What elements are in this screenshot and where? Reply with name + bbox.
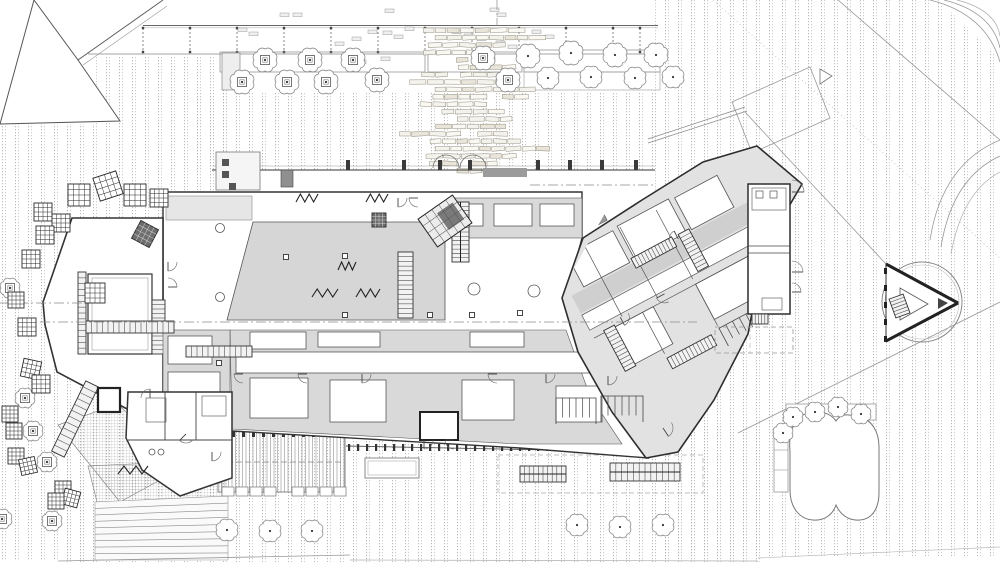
tree-trunk: [32, 430, 34, 432]
pavilion-columns: [884, 319, 887, 325]
south-colonnade: [357, 444, 359, 451]
tree-icon: [275, 70, 299, 94]
grid-node: [639, 27, 641, 29]
stone: [500, 116, 512, 121]
architectural-site-plan: [0, 0, 1000, 572]
stone: [410, 80, 426, 85]
pergola-footings: [264, 487, 276, 496]
tree-trunk: [482, 57, 484, 59]
stone: [436, 124, 452, 129]
table-icon: [8, 292, 24, 308]
exterior-stair: [520, 466, 566, 482]
stone: [460, 72, 472, 77]
pavilion-columns: [884, 302, 887, 308]
stone: [493, 131, 507, 136]
column: [470, 313, 475, 318]
grid-node: [377, 27, 379, 29]
grid-node: [639, 51, 641, 53]
tree-icon: [537, 67, 559, 89]
stone: [522, 146, 535, 151]
stone: [467, 124, 479, 129]
stone: [474, 102, 486, 107]
paver-stone: [394, 35, 403, 39]
exterior-stair: [610, 463, 680, 481]
pergola-trellis: [218, 430, 345, 492]
stone: [473, 72, 486, 76]
paver-stone: [497, 13, 506, 17]
paver-stone: [352, 37, 361, 41]
paver-stone: [381, 57, 390, 61]
stone: [435, 87, 445, 91]
stone: [442, 109, 454, 114]
room: [250, 378, 308, 418]
paver-stone: [238, 28, 247, 32]
tree-trunk: [51, 520, 53, 522]
room: [330, 380, 386, 422]
east-block-outline: [748, 184, 790, 314]
stone: [447, 131, 461, 136]
south-colonnade: [402, 444, 404, 451]
stair-outline: [752, 314, 768, 324]
paver-stone: [508, 45, 517, 49]
stone: [445, 80, 461, 85]
stone: [427, 80, 443, 84]
stone: [502, 153, 516, 158]
plan-root: [0, 0, 1000, 562]
tree-icon: [580, 66, 602, 88]
tree-trunk: [547, 77, 549, 79]
stone: [459, 42, 475, 47]
stone: [423, 28, 434, 32]
round-column: [216, 224, 225, 233]
facade-posts: [468, 160, 472, 170]
tree-trunk: [325, 81, 327, 83]
paver-stone: [249, 32, 258, 36]
facade-posts: [634, 160, 638, 170]
south-colonnade: [411, 444, 413, 451]
table-icon: [2, 406, 18, 422]
tree-trunk: [837, 406, 839, 408]
south-colonnade: [420, 444, 422, 451]
stone: [505, 35, 516, 39]
stair-core: [398, 252, 413, 318]
annex-thick-room: [98, 388, 120, 412]
room: [494, 204, 532, 226]
stone: [442, 161, 457, 166]
stone: [443, 43, 458, 48]
south-colonnade: [375, 444, 377, 451]
facade-posts: [600, 160, 604, 170]
facade-posts: [536, 160, 540, 170]
stone: [475, 28, 489, 33]
facade-posts: [402, 160, 406, 170]
table-icon: [150, 189, 168, 207]
room: [250, 332, 306, 349]
tree-trunk: [590, 76, 592, 78]
garden-room-bench: [229, 183, 236, 190]
tree-trunk: [655, 54, 657, 56]
stone: [529, 35, 546, 40]
south-colonnade: [438, 444, 440, 451]
stone: [476, 35, 488, 39]
fixture: [149, 449, 155, 455]
stone: [490, 28, 507, 33]
round-column: [528, 285, 540, 297]
table-icon: [48, 493, 64, 509]
table-icon: [19, 457, 38, 476]
stone: [447, 28, 459, 33]
stone: [457, 117, 468, 122]
stone: [517, 35, 527, 40]
tree-trunk: [782, 432, 784, 434]
stone: [455, 109, 472, 114]
tree-trunk: [527, 55, 529, 57]
paver-stone: [405, 27, 414, 31]
stone: [469, 117, 484, 122]
stone: [459, 102, 473, 107]
stone: [471, 94, 487, 99]
table-icon: [124, 184, 146, 206]
paver-stone: [545, 35, 554, 39]
tree-trunk: [269, 530, 271, 532]
tree-trunk: [507, 79, 509, 81]
stone: [508, 139, 521, 143]
garden-room-bench: [222, 159, 229, 166]
south-colonnade: [456, 444, 458, 451]
stone: [496, 124, 506, 128]
table-icon: [22, 250, 40, 268]
pergola-footings: [222, 487, 234, 496]
stone: [435, 28, 446, 33]
south-colonnade: [348, 444, 350, 451]
tree-trunk: [376, 79, 378, 81]
stone: [493, 43, 505, 48]
column: [284, 255, 289, 260]
table-icon: [52, 214, 70, 232]
pergola-footings: [320, 487, 332, 496]
stone: [429, 131, 445, 136]
stone: [514, 94, 528, 99]
link-stair: [186, 346, 252, 357]
tree-trunk: [860, 413, 862, 415]
table-icon: [68, 184, 90, 206]
stone: [457, 168, 469, 173]
stone: [478, 131, 493, 136]
north-rooms: [166, 196, 252, 220]
facade-posts: [438, 160, 442, 170]
pool-outline: [790, 412, 879, 520]
room: [462, 380, 514, 420]
entry-vestibule: [420, 412, 458, 440]
tree-trunk: [24, 397, 26, 399]
facade-posts: [568, 160, 572, 170]
column: [217, 361, 222, 366]
paver-stone: [368, 30, 377, 34]
stone: [475, 87, 492, 93]
stone: [456, 57, 468, 62]
paver-stone: [293, 13, 302, 17]
stone: [445, 94, 458, 99]
grid-node: [283, 27, 285, 29]
tree-trunk: [570, 52, 572, 54]
round-column: [216, 293, 225, 302]
entry-mat: [483, 168, 527, 177]
stone: [447, 102, 458, 107]
tree-trunk: [1, 518, 3, 520]
pergola-footings: [250, 487, 262, 496]
amphitheater-steps: [95, 496, 228, 560]
stone: [486, 116, 499, 121]
tree-icon: [516, 44, 540, 68]
stone: [519, 87, 535, 92]
stone: [423, 50, 435, 55]
stone: [492, 146, 505, 151]
stone: [488, 109, 504, 113]
tree-trunk: [634, 77, 636, 79]
paver-stone: [532, 30, 541, 34]
table-icon: [6, 423, 22, 439]
stone: [433, 102, 446, 107]
stone: [489, 35, 503, 40]
pergola-footings: [292, 487, 304, 496]
tree-trunk: [226, 529, 228, 531]
floor-plan-page: [0, 0, 1000, 572]
tree-trunk: [614, 54, 616, 56]
table-icon: [32, 375, 50, 393]
paver-stone: [490, 8, 499, 12]
tree-trunk: [352, 59, 354, 61]
stone: [428, 43, 441, 48]
round-column: [468, 283, 480, 295]
stone: [420, 102, 432, 107]
stone: [480, 124, 494, 128]
pergola-footings: [306, 487, 318, 496]
stone: [430, 139, 441, 144]
south-colonnade: [366, 444, 368, 451]
tree-trunk: [576, 524, 578, 526]
south-colonnade: [384, 444, 386, 451]
tree-trunk: [619, 526, 621, 528]
stone: [451, 146, 462, 151]
south-colonnade: [393, 444, 395, 451]
link-stair: [86, 321, 174, 333]
room: [318, 332, 380, 347]
stone: [462, 80, 476, 85]
table-icon: [372, 213, 386, 227]
tree-trunk: [814, 411, 816, 413]
stone: [447, 87, 462, 92]
stone: [411, 131, 428, 136]
tree-trunk: [241, 81, 243, 83]
stone: [457, 139, 468, 144]
table-icon: [34, 203, 52, 221]
table-icon: [85, 283, 105, 303]
garden-room-bench: [222, 171, 229, 178]
stone: [480, 146, 491, 151]
stone: [452, 50, 465, 55]
stone: [459, 95, 469, 99]
paver-stone: [280, 13, 289, 17]
column: [343, 254, 348, 259]
column: [518, 311, 523, 316]
tree-icon: [603, 43, 627, 67]
roof-edge: [78, 0, 163, 60]
stone: [460, 28, 474, 33]
stone: [493, 139, 506, 144]
planter-strip: [220, 52, 425, 72]
pergola-footings: [334, 487, 346, 496]
stone: [506, 146, 521, 151]
stone: [491, 154, 502, 159]
stone: [442, 139, 456, 143]
chimney: [281, 170, 293, 187]
pavilion-columns: [884, 285, 887, 291]
wing-dark-core: [586, 201, 607, 226]
room: [540, 204, 574, 226]
tree-icon: [624, 67, 646, 89]
stone: [469, 139, 480, 144]
grid-node: [189, 51, 191, 53]
table-icon: [36, 226, 54, 244]
tree-trunk: [672, 76, 674, 78]
stone: [422, 72, 435, 77]
tree-trunk: [662, 524, 664, 526]
pergola-footings: [236, 487, 248, 496]
stone: [458, 65, 469, 70]
fixture: [158, 449, 164, 455]
stone: [473, 109, 487, 114]
stone: [453, 124, 466, 128]
grid-node: [142, 27, 144, 29]
stone: [463, 35, 476, 40]
stone: [448, 35, 462, 40]
tree-trunk: [46, 461, 48, 463]
grid-node: [565, 27, 567, 29]
paver-stone: [335, 42, 344, 46]
column: [428, 313, 433, 318]
tree-trunk: [9, 287, 11, 289]
tree-trunk: [311, 530, 313, 532]
tree-trunk: [792, 416, 794, 418]
stone: [463, 87, 475, 92]
stone: [435, 35, 446, 39]
tree-icon: [559, 41, 583, 65]
paver-stone: [383, 31, 392, 35]
stone: [502, 94, 513, 99]
stone: [481, 139, 492, 144]
stone: [537, 146, 550, 151]
stone: [463, 146, 479, 151]
tree-trunk: [264, 59, 266, 61]
paver-stone: [385, 9, 394, 13]
stone: [435, 72, 447, 77]
tree-trunk: [309, 59, 311, 61]
tree-icon: [314, 70, 338, 94]
stone: [436, 50, 450, 55]
grid-node: [189, 27, 191, 29]
grid-node: [330, 27, 332, 29]
stone: [470, 161, 485, 166]
stone: [477, 80, 494, 85]
room: [470, 332, 524, 347]
column: [343, 313, 348, 318]
block-stoop: [752, 314, 768, 324]
pavilion-columns: [884, 336, 887, 342]
stone: [400, 132, 411, 137]
pavilion-columns: [884, 268, 887, 274]
stone: [487, 161, 497, 166]
stone: [433, 95, 444, 99]
stone: [508, 28, 525, 33]
grid-node: [612, 27, 614, 29]
grid-node: [142, 51, 144, 53]
table-icon: [18, 318, 36, 336]
stone: [435, 146, 449, 150]
tree-trunk: [286, 81, 288, 83]
facade-posts: [346, 160, 350, 170]
